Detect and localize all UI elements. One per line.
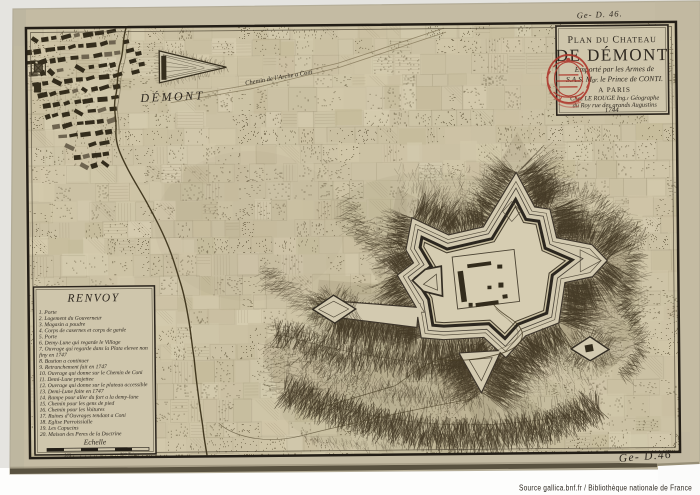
svg-text:7. Ouvrage qui regarde dans la: 7. Ouvrage qui regarde dans la Plata ele… [39,346,148,353]
svg-text:4. Corps de casernes et corps: 4. Corps de casernes et corps de garde [39,327,127,334]
svg-text:Ge- D. 46.: Ge- D. 46. [577,8,623,20]
svg-text:S.A.S. Mgr. le Prince de CONTI: S.A.S. Mgr. le Prince de CONTI. [566,74,663,84]
svg-text:PLAN DU CHATEAU: PLAN DU CHATEAU [567,34,656,46]
svg-text:100: 100 [64,452,72,457]
svg-text:RENVOY: RENVOY [66,292,119,305]
svg-text:Echelle: Echelle [83,437,107,446]
svg-text:DÉMONT: DÉMONT [139,88,205,105]
svg-text:A PARIS: A PARIS [598,86,631,94]
svg-text:300 Toises: 300 Toises [120,452,139,457]
svg-text:1744: 1744 [605,106,620,114]
svg-text:Source gallica.bnf.fr / Biblio: Source gallica.bnf.fr / Bibliothèque nat… [519,484,692,493]
svg-text:20. Maison des Peres de la Doc: 20. Maison des Peres de la Doctrine [40,431,122,438]
